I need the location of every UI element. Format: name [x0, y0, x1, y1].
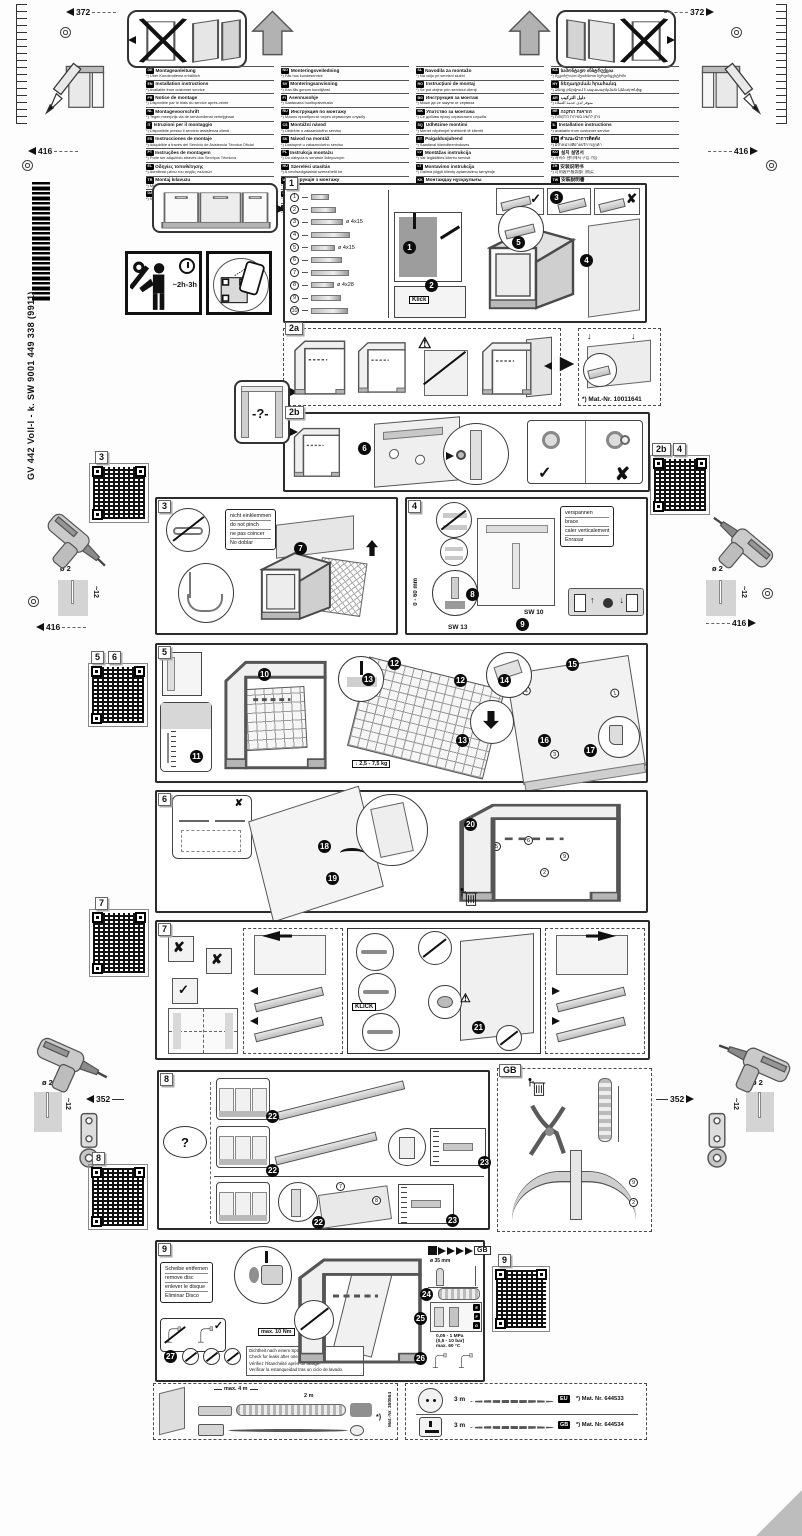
pliers-icon — [512, 1094, 584, 1178]
note-line: Scheibe entfernen — [165, 1265, 208, 1274]
language-title: Инструкция по монтажу — [291, 109, 347, 114]
down-arrow-icon: ↓ — [620, 595, 625, 605]
language-title: Montaj kılavuzu — [155, 177, 190, 182]
bushing-compare-box: ✓ ✘ — [527, 420, 643, 484]
step-circle-23: 23 — [478, 1156, 491, 1169]
language-list: deMontageanleitung*) Über Kundendienst e… — [146, 66, 686, 184]
plinth-option-thumb — [216, 1126, 270, 1168]
language-entry: svMonteringsanvisning*) Kan fås genom ku… — [281, 80, 409, 93]
step-circle-20: 20 — [464, 818, 477, 831]
tap-warning-box: ✓ — [160, 1318, 226, 1352]
language-entry: esInstrucciones de montaje*) Adquirible … — [146, 134, 274, 147]
dim-352-left: 352 — [86, 1094, 124, 1104]
panel-7-center-inset: KLICK ⚠ 21 — [347, 928, 541, 1054]
accessory-mat-nr: *) Mat.-Nr. 10011641 — [582, 396, 642, 403]
sw10-label: SW 10 — [524, 609, 544, 616]
language-title: הוראות התקנה — [561, 109, 592, 114]
language-note: *) Fås hos kundeservice — [281, 74, 409, 79]
sw13-label: SW 13 — [448, 624, 468, 631]
language-title: Montagevoorschrift — [155, 109, 199, 114]
dishwasher-front — [477, 518, 555, 606]
step-circle-7: 7 — [294, 542, 307, 555]
dim-line — [618, 1086, 619, 1142]
language-note: *) available from customer service — [551, 129, 679, 134]
down-arrow-icon: ↓ — [631, 331, 636, 341]
step-circle-6: 6 — [358, 442, 371, 455]
language-note: *) Na voljo pri servisni službi — [416, 74, 544, 79]
cabinet-icon — [478, 334, 538, 400]
language-entry: deMontageanleitung*) Über Kundendienst e… — [146, 66, 274, 79]
part-sketch — [311, 270, 349, 276]
step-circle-15: 15 — [566, 658, 579, 671]
side-panel — [588, 218, 640, 317]
pressure-spec: 0,05 - 1 MPa (0,5 - 10 bar) max. 60 °C — [436, 1334, 496, 1349]
bracket-detail — [278, 1182, 318, 1222]
registration-mark-icon — [731, 27, 742, 38]
no-icon — [224, 1348, 241, 1365]
installer-figure-icon — [130, 260, 182, 314]
language-title: Szerelési utasítás — [291, 164, 330, 169]
asterisk: *) — [376, 1414, 381, 1421]
language-title: Udhëzime montimi — [426, 122, 468, 127]
template-align-detail — [338, 656, 384, 702]
appliance-edge — [159, 1387, 185, 1435]
cross-icon: ✘ — [615, 464, 630, 485]
niche-icon — [290, 420, 346, 482]
dim-416-left-top: 416 — [28, 146, 78, 156]
part-sketch — [311, 219, 343, 225]
panel-gb-label: GB — [499, 1064, 521, 1077]
language-note: *) Adquirible a través del Servicio de A… — [146, 143, 274, 148]
step-circle-22: 22 — [266, 1110, 279, 1123]
note-line: No doblar — [230, 539, 271, 547]
language-title: คำแนะนำการติดตั้ง — [560, 136, 600, 141]
qr-2b-label: 2b — [652, 443, 671, 456]
language-entry: itIstruzioni per il montaggio*) Disponib… — [146, 121, 274, 134]
question-label: -?- — [252, 406, 269, 421]
parts-list-row: 10 — [290, 304, 386, 317]
language-title: Instrukcja montażu — [290, 150, 333, 155]
step-circle-22c: 22 — [312, 1216, 325, 1229]
pencil-mark-cabinet-icon — [692, 54, 770, 116]
part-number-circle: 5 — [290, 243, 299, 252]
language-note: *) Var iegādāties klientu servisā — [416, 156, 544, 161]
language-title: Návod na montáž — [291, 136, 330, 141]
part-number-circle: 7 — [290, 268, 299, 277]
parts-list-row: 6 — [290, 254, 386, 267]
part-number-circle: 1 — [290, 193, 299, 202]
qr-code-5-6 — [92, 667, 144, 723]
language-title: Instrucciones de montaje — [155, 136, 212, 141]
part-sketch — [311, 194, 329, 200]
language-note: *) Disponibile presso il servizio assist… — [146, 129, 274, 134]
part-sketch — [311, 232, 350, 238]
pointer-right-icon — [667, 36, 675, 44]
down-arrow-icon: ↓ — [587, 331, 592, 341]
gap-wrong-detail — [436, 502, 472, 538]
language-title: Montāžas instrukcija — [425, 150, 471, 155]
step-circle-27: 27 — [164, 1350, 177, 1363]
registration-mark-icon — [22, 160, 33, 171]
registration-mark-icon — [762, 588, 773, 599]
part-sketch — [311, 308, 348, 314]
language-entry: hyՏեղադրման հրահանգ*) Ձեռք բերվում է սպա… — [551, 80, 679, 93]
step-circle-12b: 12 — [454, 674, 467, 687]
language-title: Monteringsanvisning — [290, 81, 337, 86]
language-entry: heהוראות התקנה*) ניתן להשיג בשירות הלקוח… — [551, 107, 679, 120]
part-number-circle: 10 — [290, 306, 299, 315]
socket-gb-icon — [419, 1417, 442, 1437]
dim-372-left: 372 — [66, 7, 116, 17]
language-entry: plInstrukcja montażu*) Do nabycia w serw… — [281, 148, 409, 161]
insert-arrow-icon — [544, 362, 552, 370]
cross-icon: ✘ — [626, 191, 637, 207]
cube-wrong: ✘ — [168, 936, 194, 962]
note-line: Enrasar — [565, 536, 609, 544]
language-note: *) Disponible par le biais du service ap… — [146, 101, 274, 106]
registration-mark-icon — [766, 160, 777, 171]
panel-1-label: 1 — [285, 177, 298, 190]
strip-step3: 3 — [547, 188, 591, 215]
arrow-up-icon — [249, 8, 296, 58]
language-title: Монтаждау нұсқаулығы — [426, 177, 482, 182]
step2-inset: 2 Klick — [394, 286, 466, 318]
cord-length: 3 m — [454, 1396, 465, 1403]
step1-inset: 1 — [394, 212, 462, 282]
part-code-vertical: GV 442 Voll-I - k. SW 9001 449 338 (9911… — [26, 300, 36, 480]
qr-code-3 — [93, 467, 145, 519]
corrugated-hose — [236, 1404, 346, 1416]
language-title: 安装说明书 — [560, 164, 583, 169]
language-note: *) Galima įsigyti klientų aptarnavimo ta… — [416, 170, 544, 175]
screw-compare-inset: ✘ — [172, 795, 252, 859]
step-circle-17: 17 — [584, 744, 597, 757]
language-note: *) Obdržíte u zákaznického servisu — [281, 129, 409, 134]
question-label: ? — [181, 1135, 189, 1150]
language-entry: slNavodila za montažo*) Na voljo pri ser… — [416, 66, 544, 79]
step-circle-12: 12 — [388, 657, 401, 670]
part-number-circle: 9 — [290, 294, 299, 303]
parts-list-row: 9 — [290, 292, 386, 305]
smartphone-scan-icon — [214, 260, 270, 312]
disc-removal-detail — [234, 1246, 292, 1304]
note-line: ne pas coincer — [230, 530, 271, 539]
qr-6-label: 6 — [108, 651, 121, 664]
cube-wrong: ✘ — [206, 948, 232, 974]
ruler-adjust-box: 23 — [430, 1128, 486, 1166]
pointer-left-icon — [128, 36, 136, 44]
note-line: verspannen — [565, 509, 609, 518]
language-note: *) A vevőszolgálatnál szerezhető be — [281, 170, 409, 175]
step-circle-18: 18 — [318, 840, 331, 853]
panel-7-right-inset — [545, 928, 645, 1054]
part-sketch — [311, 207, 336, 213]
press-detail — [470, 700, 514, 744]
plinth-option-thumb — [216, 1182, 270, 1224]
step-circle-16: 16 — [538, 734, 551, 747]
language-note: *) 서비스 센터에서 구입 가능 — [551, 156, 679, 161]
language-entry: kaსამონტაჟო ინსტრუქცია*) შეგიძლიათ შეიძი… — [551, 66, 679, 79]
step-circle-9: 9 — [516, 618, 529, 631]
language-entry: csMontážní návod*) Obdržíte u zákaznické… — [281, 121, 409, 134]
panel-7-label: 7 — [158, 923, 171, 936]
cord-mat-nr: *) Mat. Nr. 644533 — [576, 1396, 624, 1402]
panel-3-label: 3 — [158, 500, 171, 513]
step-circle-4: 4 — [580, 254, 593, 267]
step-circle-8: 8 — [466, 588, 479, 601]
note-line: brace — [565, 518, 609, 527]
strip-wrong: ✘ — [594, 188, 640, 215]
dim-352-right: 352 — [656, 1094, 694, 1104]
check-icon: ✓ — [178, 982, 189, 998]
rotate-arrow-icon — [340, 848, 364, 858]
qr-3-label: 3 — [95, 451, 108, 464]
language-entry: ilInstallation instructions*) available … — [551, 121, 679, 134]
panel-2a-accessory: ↓ ↓ *) Mat.-Nr. 10011641 — [578, 328, 661, 406]
ruler-adjust-box: 23 — [398, 1184, 454, 1224]
language-title: სამონტაჟო ინსტრუქცია — [561, 68, 614, 73]
language-title: Упатство за монтажа — [426, 109, 474, 114]
step-circle-13b: 13 — [456, 734, 469, 747]
language-title: Installation instructions — [559, 122, 612, 127]
fitting — [198, 1406, 232, 1416]
language-title: Notice de montage — [155, 95, 197, 100]
part-ref: 9 — [629, 1178, 638, 1187]
door-panel-warning-box-right — [556, 10, 676, 68]
plinth-option-thumb — [216, 1078, 270, 1120]
cabinet-niche-iso — [208, 650, 348, 774]
language-title: Navodila za montažo — [425, 68, 471, 73]
part-ref: 2 — [629, 1198, 638, 1207]
part-sketch — [311, 257, 342, 263]
step-circle-23b: 23 — [446, 1214, 459, 1227]
pinch-note: nicht einklemmen do not pinch ne pas coi… — [225, 509, 276, 550]
language-entry: lvMontāžas instrukcija*) Var iegādāties … — [416, 148, 544, 161]
registration-mark-icon — [60, 27, 71, 38]
dim-416-right-top: 416 — [708, 146, 758, 156]
language-entry: nlMontagevoorschrift*) Tegen meerprijs v… — [146, 107, 274, 120]
language-entry: ruИнструкция по монтажу*) Можно приобрес… — [281, 107, 409, 120]
dishwasher-connection — [288, 1248, 438, 1368]
step-circle-13: 13 — [362, 673, 375, 686]
row-divider — [214, 1176, 484, 1177]
panel-8-label: 8 — [160, 1073, 173, 1086]
language-note: *) Се добива преку сервисната служба — [416, 115, 544, 120]
panel-2a-label: 2a — [285, 322, 303, 335]
cross-icon: ✘ — [235, 798, 243, 809]
parts-list-row: 8ø 4x28 — [290, 279, 386, 292]
part-number-circle: 3 — [290, 218, 299, 227]
language-entry: ltMontavimo instrukcija*) Galima įsigyti… — [416, 162, 544, 175]
ruler-left — [16, 4, 27, 124]
parts-list-row: 3ø 4x15 — [290, 216, 386, 229]
no-icon — [182, 1348, 199, 1365]
qr-code-9 — [496, 1270, 546, 1328]
barcode — [32, 182, 50, 302]
warning-cross-detail: ⚠ — [416, 332, 474, 402]
divider — [388, 190, 389, 318]
qr-7-label: 7 — [95, 897, 108, 910]
check-icon: ✓ — [538, 463, 551, 483]
language-title: Инструкция за монтаж — [426, 95, 478, 100]
drill-icon — [702, 1022, 802, 1115]
dim-416-right-bottom: 416 — [706, 618, 756, 628]
registration-mark-icon — [28, 596, 39, 607]
language-entry: enInstallation instructions*) Available … — [146, 80, 274, 93]
cube-right: ✓ — [172, 978, 198, 1004]
language-entry: skNávod na montáž*) Dostupné u zákazníck… — [281, 134, 409, 147]
language-entry: sqUdhëzime montimi*) Merret nëpërmjet sh… — [416, 121, 544, 134]
language-entry: bgИнструкция за монтаж*) Може да се заку… — [416, 93, 544, 106]
language-entry: frNotice de montage*) Disponible par le … — [146, 93, 274, 106]
parts-list-row: 1 — [290, 191, 386, 204]
language-entry: huSzerelési utasítás*) A vevőszolgálatná… — [281, 162, 409, 175]
temp-max: max. 60 °C — [436, 1344, 496, 1349]
step-circle-5: 5 — [512, 236, 525, 249]
no-icon — [203, 1348, 220, 1365]
part-ref: 8 — [372, 1196, 381, 1205]
hose-2m-dim: 2 m — [304, 1393, 313, 1399]
step-circle-11: 11 — [190, 750, 203, 763]
language-title: Monteringsveiledning — [291, 68, 339, 73]
union-nut — [350, 1425, 364, 1436]
language-column-4: kaსამონტაჟო ინსტრუქცია*) შეგიძლიათ შეიძი… — [551, 66, 679, 184]
region-badge: EU — [558, 1395, 570, 1403]
step-circle-19: 19 — [326, 872, 339, 885]
gb-ref-label: GB — [474, 1246, 491, 1255]
niche-icon — [290, 334, 352, 398]
language-entry: roInstrucţiuni de montaj*) Se pot obţine… — [416, 80, 544, 93]
hose-mat-nr: Mat.-Nr. 350564 — [388, 1392, 393, 1427]
disc-note: Scheibe entfernen remove disc enlever le… — [160, 1262, 213, 1303]
qr-code-8 — [92, 1168, 144, 1226]
language-note: *) 可向客户服务部门购买 — [551, 170, 679, 175]
drill-depth: ~12 — [732, 1098, 739, 1110]
dishwasher-iso — [252, 545, 334, 627]
tap-icon — [430, 1350, 454, 1372]
qr-5-label: 5 — [91, 651, 104, 664]
cord-mat-nr: *) Mat. Nr. 644534 — [576, 1422, 624, 1428]
hook-detail — [598, 716, 640, 758]
range-label: 0 - 60 mm — [413, 578, 419, 606]
language-title: Paigaldusjuhend — [425, 136, 463, 141]
language-note: *) Може да се закупи от сервиза — [416, 101, 544, 106]
part-sketch — [311, 282, 334, 288]
power-cord-box: 3 m EU *) Mat. Nr. 644533 3 m GB *) Mat.… — [405, 1383, 647, 1440]
hose-clamp-sketch — [438, 1288, 480, 1300]
language-column-1: deMontageanleitung*) Über Kundendienst e… — [146, 66, 274, 184]
language-column-2: noMonteringsveiledning*) Fås hos kundese… — [281, 66, 409, 184]
door-cross-icon — [564, 17, 668, 65]
parts-list-row: 4 — [290, 229, 386, 242]
language-title: دليل التركيب — [561, 95, 586, 100]
check-icon: ✓ — [214, 1319, 223, 1332]
hose-total-dim: max. 4 m — [214, 1386, 258, 1392]
part-ref: 7 — [336, 1182, 345, 1191]
warning-icon: ⚠ — [418, 334, 431, 352]
step-circle-1: 1 — [403, 241, 416, 254]
language-title: Montavimo instrukcija — [425, 164, 475, 169]
qr-code-7 — [93, 913, 145, 973]
template-thumb — [160, 702, 212, 772]
level-icon-box: ↑ ↓ — [568, 588, 644, 616]
note-line: nicht einklemmen — [230, 512, 271, 521]
step-circle-25: 25 — [414, 1312, 427, 1325]
language-entry: ko설치 설명서*) 서비스 센터에서 구입 가능 — [551, 148, 679, 161]
panel-9-label: 9 — [158, 1243, 171, 1256]
language-entry: ptInstruções de montagem*) Pode ser adqu… — [146, 148, 274, 161]
screw-size-label: ø 4x15 — [346, 219, 363, 225]
door-corner-detail — [356, 794, 428, 866]
kitchen-cabinets-icon — [160, 188, 272, 230]
step-circle-3: 3 — [550, 191, 563, 204]
door-panel-warning-box-left — [127, 10, 247, 68]
language-note: *) Se pot obţine prin serviciul clienţi — [416, 88, 544, 93]
language-entry: fiAsennusohje*) Saatavana huoltopalvelus… — [281, 93, 409, 106]
trash-icon — [456, 886, 482, 908]
tap-icon — [456, 1350, 480, 1372]
arrow-up-icon — [506, 8, 553, 58]
step-circle-21: 21 — [472, 1021, 485, 1034]
language-column-3: slNavodila za montažo*) Na voljo pri ser… — [416, 66, 544, 184]
language-note: *) Pode ser adquirido através dos Serviç… — [146, 156, 274, 161]
pinch-wrong-detail — [166, 508, 210, 552]
question-cloud: ? — [163, 1126, 207, 1158]
klick-label: KLICK — [352, 1003, 376, 1011]
panel-7-left-inset — [243, 928, 343, 1054]
drill-icon — [688, 497, 789, 596]
part-number-circle: 2 — [290, 205, 299, 214]
language-note: *) Über Kundendienst erhältlich — [146, 74, 274, 79]
qr-8-label: 8 — [92, 1152, 105, 1165]
language-note: *) Tegen meerprijs via de servicedienst … — [146, 115, 274, 120]
weight-badge: ↓ 2,5 - 7,5 kg — [352, 760, 390, 768]
language-note: *) Merret nëpërmjet shërbimit të klienti… — [416, 129, 544, 134]
step-circle-24: 24 — [420, 1288, 433, 1301]
socket-eu-icon — [418, 1388, 443, 1413]
language-note: *) มีจำหน่ายที่ฝ่ายบริการลูกค้า — [551, 143, 679, 148]
region-badge: GB — [558, 1421, 570, 1429]
drain-hose-piece — [598, 1078, 612, 1142]
panel-6-label: 6 — [158, 793, 171, 806]
language-note: *) Do nabycia w serwisie fabrycznym — [281, 156, 409, 161]
language-note: *) შეგიძლიათ შეიძინოთ სერვისცენტრში — [551, 74, 679, 79]
screw-size-label: ø 4x28 — [337, 282, 354, 288]
ruler-right — [776, 4, 787, 124]
language-title: Տեղադրման հրահանգ — [561, 81, 617, 86]
language-title: Istruzioni per il montaggio — [154, 122, 213, 127]
installer-time-box: ~2h-3h — [125, 251, 202, 315]
language-note: *) Kan fås genom kundtjänst — [281, 88, 409, 93]
screw-size-label: ø 4x15 — [338, 245, 355, 251]
note-line: do not pinch — [230, 521, 271, 530]
divider — [416, 1414, 638, 1415]
language-entry: zh安装说明书*) 可向客户服务部门购买 — [551, 162, 679, 175]
language-entry: noMonteringsveiledning*) Fås hos kundese… — [281, 66, 409, 79]
step-circle-26: 26 — [414, 1352, 427, 1365]
part-number-circle: 4 — [290, 231, 299, 240]
part-sketch — [311, 295, 341, 301]
brace-note: verspannen brace caler verticalement Enr… — [560, 506, 614, 547]
panel-4-label: 4 — [408, 500, 421, 513]
language-title: Montážní návod — [291, 122, 326, 127]
magnifier-detail — [443, 423, 509, 485]
language-note: *) متوفر لدى خدمة العملاء — [551, 101, 679, 106]
part-number-circle: 8 — [290, 281, 299, 290]
cross-icon: ✘ — [173, 939, 185, 956]
note-line: enlever le disque — [165, 1283, 208, 1292]
part-number-circle: 6 — [290, 256, 299, 265]
